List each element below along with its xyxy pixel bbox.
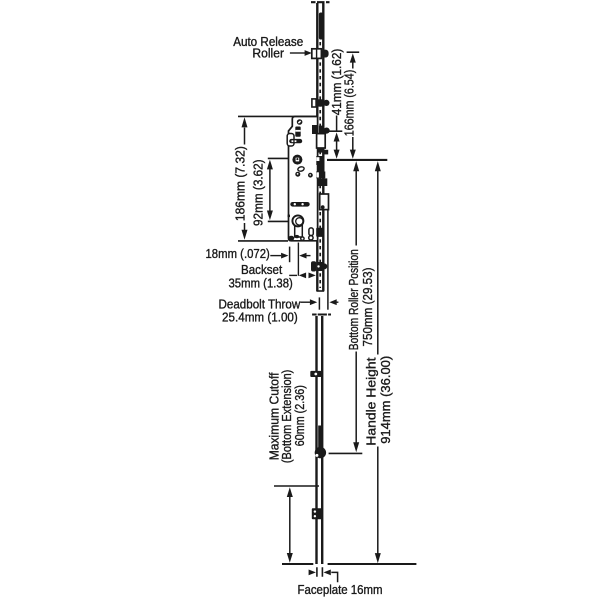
svg-text:18mm (.072): 18mm (.072) [206,247,270,261]
svg-text:Backset: Backset [241,263,283,277]
svg-text:Handle Height: Handle Height [365,357,379,446]
svg-text:92mm (3.62): 92mm (3.62) [252,159,266,226]
svg-text:60mm (2.36): 60mm (2.36) [293,385,307,446]
svg-text:35mm (1.38): 35mm (1.38) [229,277,293,291]
svg-text:750mm (29.53): 750mm (29.53) [361,268,375,347]
svg-text:Roller: Roller [252,47,284,61]
svg-text:166mm (6.54): 166mm (6.54) [343,70,357,137]
svg-text:25.4mm (1.00): 25.4mm (1.00) [222,310,298,324]
svg-text:914mm (36.00): 914mm (36.00) [379,356,393,444]
svg-text:Faceplate 16mm: Faceplate 16mm [298,583,383,597]
svg-text:Bottom Roller Position: Bottom Roller Position [347,249,361,350]
svg-text:186mm (7.32): 186mm (7.32) [234,146,248,221]
